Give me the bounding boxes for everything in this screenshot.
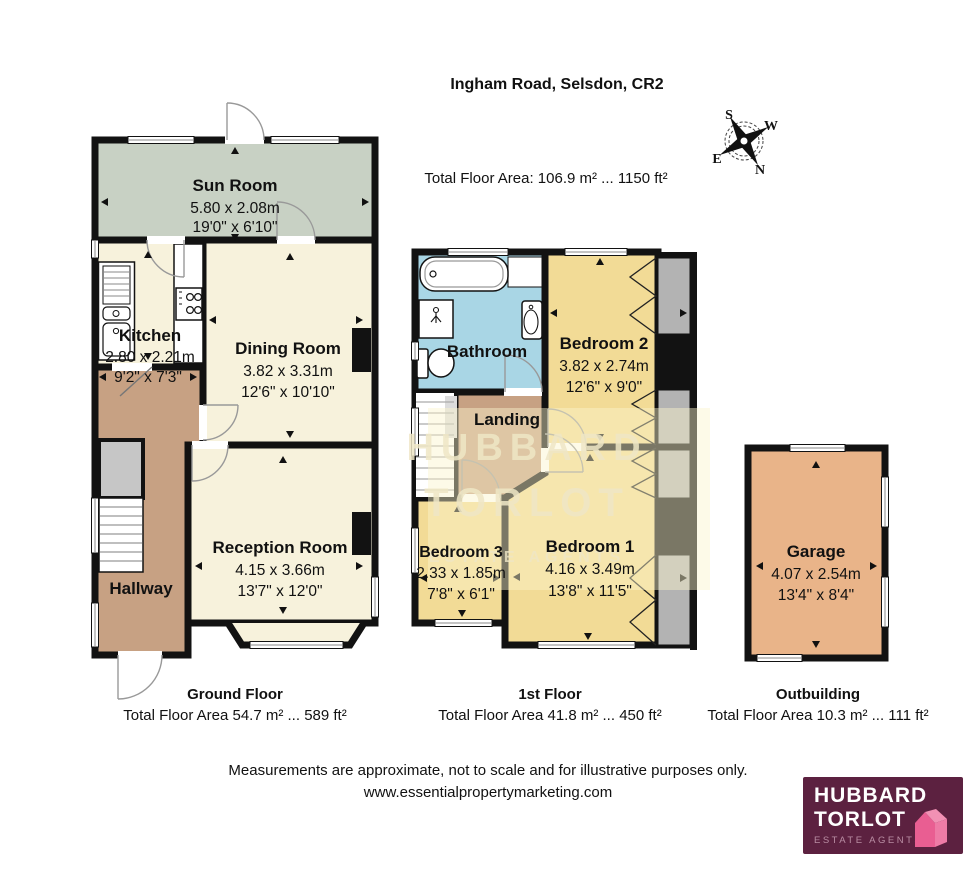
bathtub-icon <box>420 257 542 291</box>
ground-floor-name: Ground Floor <box>85 684 385 705</box>
ground-floor-plan: Sun Room 5.80 x 2.08m 19'0" x 6'10" Kitc… <box>80 95 400 720</box>
dining-room-imperial: 12'6" x 10'10" <box>241 384 335 401</box>
bedroom3-imperial: 7'8" x 6'1" <box>427 586 495 603</box>
compass-north-label: N <box>755 163 765 178</box>
compass-rose-icon: S W E N <box>704 101 784 181</box>
reception-chimney-breast <box>352 512 371 555</box>
dining-room-label: Dining Room <box>235 339 341 358</box>
basin-icon <box>522 301 542 339</box>
bedroom1-metric: 4.16 x 3.49m <box>545 561 635 578</box>
outbuilding-plan: Garage 4.07 x 2.54m 13'4" x 8'4" <box>738 438 898 670</box>
garage-imperial: 13'4" x 8'4" <box>778 587 854 604</box>
dining-chimney-breast <box>352 328 371 372</box>
ground-staircase <box>99 440 143 572</box>
watermark-line1: HUBBARD <box>406 427 647 469</box>
reception-room-imperial: 13'7" x 12'0" <box>237 583 322 600</box>
dining-door-opening <box>277 236 315 244</box>
garage-metric: 4.07 x 2.54m <box>771 566 861 583</box>
ground-floor-area: Total Floor Area 54.7 m² ... 589 ft² <box>85 705 385 726</box>
reception-room-label: Reception Room <box>212 538 347 557</box>
footer-text: Measurements are approximate, not to sca… <box>108 760 868 804</box>
first-floor-caption: 1st Floor Total Floor Area 41.8 m² ... 4… <box>400 684 700 726</box>
kitchen-sink-icon <box>99 262 135 360</box>
garage-label: Garage <box>787 542 846 561</box>
outbuilding-name: Outbuilding <box>668 684 968 705</box>
kitchen-imperial: 9'2" x 7'3" <box>114 369 182 386</box>
bedroom2-imperial: 12'6" x 9'0" <box>566 379 642 396</box>
bedroom2-label: Bedroom 2 <box>560 334 649 353</box>
kitchen-metric: 2.80 x 2.21m <box>105 349 195 366</box>
hob-icon <box>176 288 202 320</box>
front-door-opening <box>118 651 162 659</box>
watermark-line2: TORLOT <box>424 481 630 525</box>
first-floor-area: Total Floor Area 41.8 m² ... 450 ft² <box>400 705 700 726</box>
dining-room-metric: 3.82 x 3.31m <box>243 363 333 380</box>
agency-logo: HUBBARD TORLOT ESTATE AGENTS <box>803 777 963 854</box>
first-floor-plan: HUBBARD TORLOT ESTATE AGENTS Bathroom Be… <box>400 245 710 665</box>
hallway-label: Hallway <box>109 579 173 598</box>
page-title: Ingham Road, Selsdon, CR2 <box>397 76 717 94</box>
compass-center <box>741 138 748 145</box>
kitchen-door-opening <box>147 236 185 244</box>
bedroom3-metric: 2.33 x 1.85m <box>416 565 506 582</box>
sun-room-label: Sun Room <box>193 176 278 195</box>
outbuilding-area: Total Floor Area 10.3 m² ... 111 ft² <box>668 705 968 726</box>
reception-room-metric: 4.15 x 3.66m <box>235 562 325 579</box>
reception-door-opening <box>192 441 228 449</box>
sun-room-imperial: 19'0" x 6'10" <box>192 219 277 236</box>
kitchen-label: Kitchen <box>119 326 181 345</box>
sun-room-metric: 5.80 x 2.08m <box>190 200 280 217</box>
bathroom-label: Bathroom <box>447 342 527 361</box>
shower-icon <box>419 300 453 338</box>
first-floor-name: 1st Floor <box>400 684 700 705</box>
outbuilding-caption: Outbuilding Total Floor Area 10.3 m² ...… <box>668 684 968 726</box>
compass-south-label: S <box>725 108 733 123</box>
floorplan-page: Ingham Road, Selsdon, CR2 Total Floor Ar… <box>0 0 980 873</box>
compass-east-label: E <box>712 152 721 167</box>
compass-west-label: W <box>764 119 778 134</box>
hall-dining-door-opening <box>199 405 207 440</box>
website-text: www.essentialpropertymarketing.com <box>108 782 868 804</box>
disclaimer-text: Measurements are approximate, not to sca… <box>108 760 868 782</box>
bathroom-door-opening <box>504 388 542 396</box>
sun-room-door-opening <box>225 136 264 144</box>
bedroom2-metric: 3.82 x 2.74m <box>559 358 649 375</box>
total-floor-area: Total Floor Area: 106.9 m² ... 1150 ft² <box>386 170 706 187</box>
bedroom1-label: Bedroom 1 <box>546 537 635 556</box>
logo-house-icon <box>909 805 955 851</box>
ground-floor-caption: Ground Floor Total Floor Area 54.7 m² ..… <box>85 684 385 726</box>
bedroom1-imperial: 13'8" x 11'5" <box>548 583 632 600</box>
landing-label: Landing <box>474 410 540 429</box>
logo-name-line1: HUBBARD <box>803 777 963 808</box>
bedroom3-label: Bedroom 3 <box>419 544 503 561</box>
